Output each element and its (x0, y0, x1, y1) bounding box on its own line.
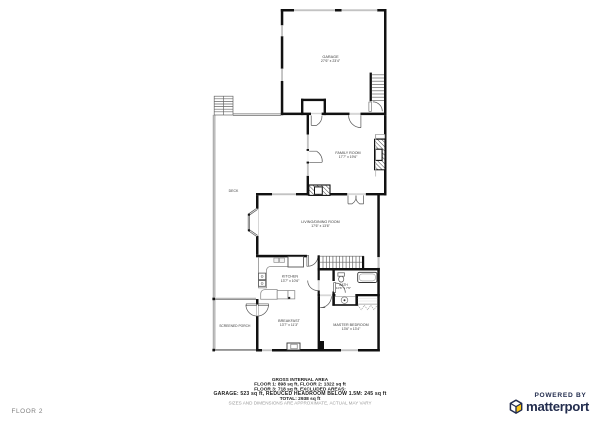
svg-text:13'7" x 10'6": 13'7" x 10'6" (281, 279, 300, 283)
svg-text:SIZES AND DIMENSIONS ARE APPRO: SIZES AND DIMENSIONS ARE APPROXIMATE, AC… (228, 401, 371, 406)
svg-text:matterport: matterport (526, 399, 590, 414)
svg-text:17'7" x 19'6": 17'7" x 19'6" (339, 155, 358, 159)
svg-text:GROSS INTERNAL AREA: GROSS INTERNAL AREA (272, 377, 329, 382)
svg-text:17'6" x 13'6": 17'6" x 13'6" (311, 224, 330, 228)
svg-text:SCREENED PORCH: SCREENED PORCH (219, 324, 251, 328)
svg-text:DECK: DECK (229, 189, 239, 193)
svg-text:FLOOR 2: FLOOR 2 (12, 408, 44, 415)
svg-text:13'6" x 13'4": 13'6" x 13'4" (342, 327, 361, 331)
svg-text:10'6" x 7'6": 10'6" x 7'6" (336, 286, 351, 290)
svg-text:27'6" x 23'4": 27'6" x 23'4" (321, 59, 341, 63)
svg-text:13'7" x 11'3": 13'7" x 11'3" (280, 323, 299, 327)
